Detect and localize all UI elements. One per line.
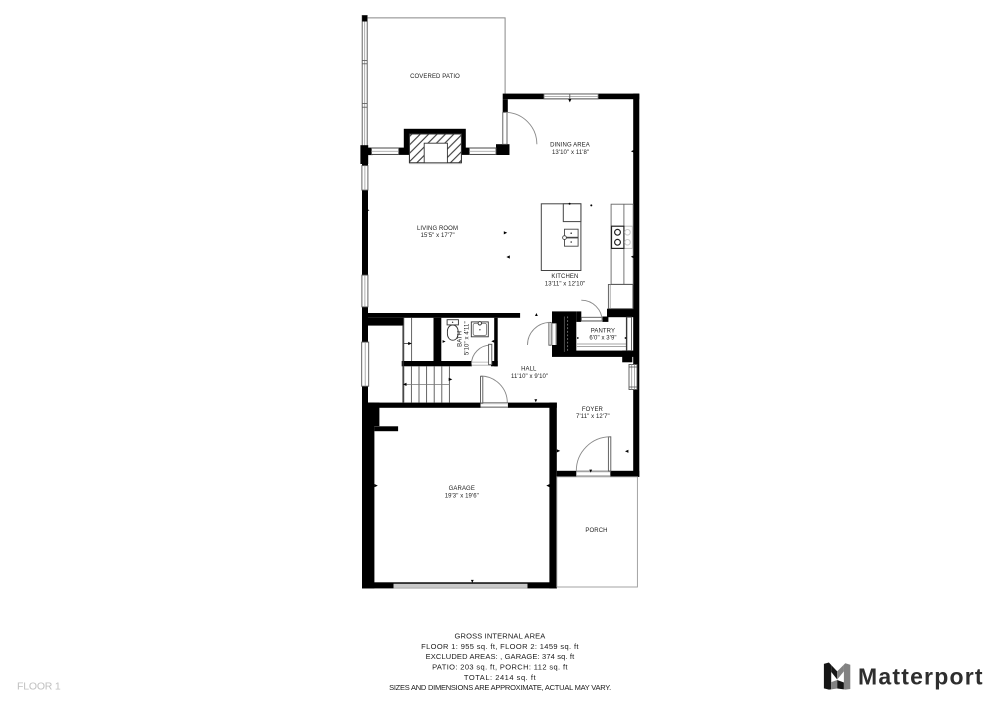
svg-text:PANTRY: PANTRY [591,328,615,334]
svg-text:PORCH: PORCH [585,528,607,534]
svg-text:HALL: HALL [521,366,537,372]
svg-text:GROSS INTERNAL AREA: GROSS INTERNAL AREA [455,632,546,641]
svg-text:15'5" x 17'7": 15'5" x 17'7" [421,233,455,239]
svg-text:FOYER: FOYER [582,407,604,413]
svg-text:19'3" x 19'6": 19'3" x 19'6" [445,493,479,499]
svg-text:13'11" x 12'10": 13'11" x 12'10" [545,282,586,288]
svg-text:LIVING ROOM: LIVING ROOM [417,226,458,232]
svg-text:FLOOR 1: FLOOR 1 [17,681,61,693]
svg-text:EXCLUDED AREAS: , GARAGE: 374: EXCLUDED AREAS: , GARAGE: 374 sq. ft [426,652,576,661]
svg-text:KITCHEN: KITCHEN [551,274,578,280]
svg-text:DINING AREA: DINING AREA [550,143,590,149]
svg-text:GARAGE: GARAGE [449,486,475,492]
svg-text:13'10" x 11'8": 13'10" x 11'8" [552,150,589,156]
svg-text:PATIO: 203 sq. ft, PORCH: 112: PATIO: 203 sq. ft, PORCH: 112 sq. ft [432,663,568,672]
svg-text:Matterport: Matterport [858,664,984,690]
svg-text:7'11" x 12'7": 7'11" x 12'7" [576,414,610,420]
svg-text:SIZES AND DIMENSIONS ARE APPRO: SIZES AND DIMENSIONS ARE APPROXIMATE, AC… [389,683,611,692]
svg-text:COVERED PATIO: COVERED PATIO [410,74,460,80]
svg-text:TOTAL: 2414 sq. ft: TOTAL: 2414 sq. ft [464,673,537,682]
svg-text:6'0" x 3'9": 6'0" x 3'9" [589,336,616,342]
svg-text:FLOOR 1: 955 sq. ft, FLOOR 2:: FLOOR 1: 955 sq. ft, FLOOR 2: 1459 sq. f… [421,642,579,651]
svg-text:5'10" x 4'11": 5'10" x 4'11" [464,321,470,355]
svg-text:11'10" x 9'10": 11'10" x 9'10" [511,374,548,380]
svg-text:BATH: BATH [458,331,464,347]
